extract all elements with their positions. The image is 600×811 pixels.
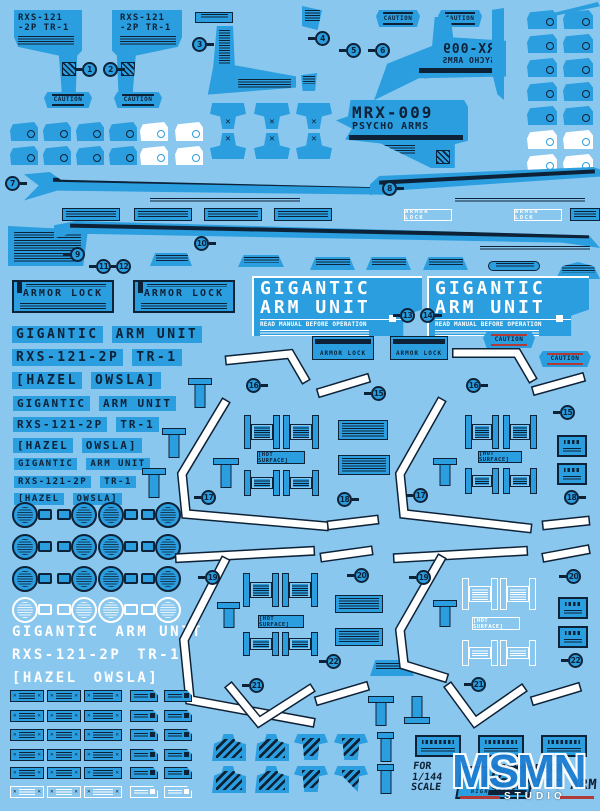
x-bar-decal [84,710,122,722]
boot-decal-white [140,146,168,165]
boot-decal [563,58,593,77]
spec-plate [558,597,588,619]
cap-decal [254,133,290,159]
boot-decal [76,122,104,141]
h-beam-decal [244,470,280,496]
label-strip [570,208,600,221]
mrx-title: MRX-009 [352,105,433,121]
watermark-logo: MSMN [452,748,585,794]
notch-bar-decal [130,767,158,779]
marker-16b: 16 [466,378,481,393]
hazard-cap-decal [334,734,368,760]
scale-note: FOR 1/144 SCALE [410,762,443,794]
h-beam-decal [282,573,318,607]
marker-17: 17 [201,490,216,505]
trapezoid-decal [150,253,192,266]
h-beam-decal [283,415,319,449]
marker-9: 9 [70,247,85,262]
x-bar-decal [10,710,44,722]
hot-surface-label: [HOT SURFACE] [257,451,305,464]
boot-decal [10,146,38,165]
decal-sheet: RXS-121 -2P TR-1 RXS-121 -2P TR-1 CAUTIO… [0,0,600,811]
armor-lock-bar-white: ARMOR LOCK [514,209,562,221]
hot-surface-label: [HOT SURFACE] [478,451,522,463]
keyhole-decal-white [12,597,54,624]
notch-bar-decal [130,729,158,741]
marker-19: 19 [205,570,220,585]
text-row-pilot-medium: [HAZELOWSLA] [13,438,151,453]
hazard-boot-decal [255,734,289,761]
notch-bar-decal [130,749,158,761]
marker-13: 13 [400,308,415,323]
notch-bar-decal [164,729,192,741]
cap-decal [254,103,290,129]
keyhole-decal [55,534,97,561]
panel-warning: READ MANUAL BEFORE OPERATION [260,321,416,329]
trapezoid-decal [238,255,284,267]
marker-20: 20 [354,568,369,583]
hazard-cap-decal [294,734,328,760]
armor-lock-bar-white: ARMOR LOCK [404,209,452,221]
boot-decal [10,122,38,141]
marker-5: 5 [346,43,361,58]
caution-decal: CAUTION [376,10,420,27]
blade-decal-8 [370,167,600,197]
marker-4: 4 [315,31,330,46]
t-bolt-decal [433,600,457,627]
text-row-unit-large: GIGANTICARM UNIT [12,326,211,343]
t-bolt-decal [217,602,240,628]
armor-lock-decal: ARMOR LOCK [12,280,114,313]
fin-decal [492,8,504,100]
x-bar-decal-white [10,786,44,798]
boot-decal [527,34,557,53]
hazard-cap-decal [334,766,368,792]
h-beam-decal-white [500,578,536,610]
cap-decal [210,103,246,129]
boot-decal [527,106,557,125]
boot-decal-white [175,122,203,141]
trapezoid-decal [423,257,468,270]
mrx-subtitle: PSYCHO ARMS [352,121,433,132]
notch-bar-decal [130,690,158,702]
spec-plate [558,626,588,648]
keyhole-decal [98,534,140,561]
wing-code-line2: -2P TR-1 [18,23,69,33]
notch-bar-decal [164,710,192,722]
marker-15b: 15 [560,405,575,420]
x-bar-decal [10,690,44,702]
notch-bar-decal-white [130,786,158,798]
notch-bar-decal [130,710,158,722]
marker-19b: 19 [416,570,431,585]
boot-decal-white [175,146,203,165]
wing-code-line1: RXS-121 [120,13,171,23]
h-beam-decal-white [462,640,498,666]
h-beam-decal [465,415,499,449]
x-bar-decal [84,767,122,779]
h-beam-decal [503,415,537,449]
h-beam-decal [243,573,279,607]
boot-decal [109,122,137,141]
small-angular-decal [301,73,317,91]
keyhole-decal [12,566,54,593]
t-bolt-decal [377,764,394,794]
spec-plate [557,435,587,457]
text-row-code-medium: RXS-121-2PTR-1 [13,417,168,432]
h-beam-decal-white [500,640,536,666]
marker-2: 2 [103,62,118,77]
gigantic-panel: GIGANTIC ARM UNIT READ MANUAL BEFORE OPE… [252,276,422,336]
keyhole-decal-white [55,597,97,624]
text-row-pilot-white: [HAZELOWSLA] [12,670,175,686]
marker-8: 8 [382,181,397,196]
t-bolt-decal [213,458,239,488]
panel-warning: READ MANUAL BEFORE OPERATION [435,321,583,329]
h-beam-decal [282,632,318,656]
boot-decal-white [527,130,557,149]
caution-decal: CAUTION [114,92,162,108]
h-beam-decal [465,468,499,494]
keyhole-decal [98,566,140,593]
t-bolt-decal [377,732,394,762]
label-strip [62,208,120,221]
boot-decal [43,146,71,165]
caution-decal-red: CAUTION [483,332,535,348]
boot-decal-white [140,122,168,141]
watermark-sub: STUDIO [504,791,566,802]
hatch-square [436,150,450,164]
boot-decal [563,82,593,101]
x-bar-decal [10,767,44,779]
watermark-rule-right [560,796,594,799]
hazard-boot-decal [212,766,246,793]
marker-17b: 17 [413,488,428,503]
rounded-bar-decal [488,261,540,271]
x-bar-decal [84,690,122,702]
boot-decal [563,10,593,29]
text-row-unit-small: GIGANTICARM UNIT [14,458,159,470]
t-bolt-decal [433,458,457,486]
notch-bar-decal [164,749,192,761]
marker-22: 22 [326,654,341,669]
spec-bar [338,420,388,440]
white-v-decal [445,682,525,728]
trapezoid-decal [310,257,355,270]
spec-bar [338,455,390,475]
small-caution-strip [195,12,233,23]
white-v-decal [225,680,315,730]
decal-mrx: MRX-009 PSYCHO ARMS [336,100,468,168]
label-strip [274,208,332,221]
keyhole-decal-white [98,597,140,624]
x-bar-decal [10,749,44,761]
marker-18b: 18 [564,490,579,505]
marker-21b: 21 [471,677,486,692]
decal-mrx-mirrored: MRX-009 PSYCHO ARMS [374,17,506,102]
spec-bar [335,628,383,646]
x-bar-decal [47,767,81,779]
boot-decal [109,146,137,165]
marker-6: 6 [375,43,390,58]
hazard-cap-decal [294,766,328,792]
x-bar-decal [47,690,81,702]
marker-18: 18 [337,492,352,507]
white-dash-decal [318,684,368,704]
spec-plate [557,463,587,485]
gigantic-panel: GIGANTIC ARM UNIT READ MANUAL BEFORE OPE… [427,276,589,336]
x-bar-decal-white [84,786,122,798]
text-row-code-small: RXS-121-2PTR-1 [14,476,145,488]
boot-decal [76,146,104,165]
x-bar-decal [47,710,81,722]
boot-decal [563,106,593,125]
hazard-boot-decal [212,734,246,761]
x-bar-decal [84,749,122,761]
marker-14: 14 [420,308,435,323]
hatch-square [62,62,76,76]
h-beam-decal [244,415,280,449]
hazard-boot-decal [255,766,289,793]
h-beam-decal [503,468,537,494]
x-bar-decal-white [47,786,81,798]
marker-20b: 20 [566,569,581,584]
text-row-pilot-large: [HAZELOWSLA] [12,372,170,389]
notch-bar-decal [164,690,192,702]
x-bar-decal [47,729,81,741]
marker-22b: 22 [568,653,583,668]
spec-bar [335,595,383,613]
keyhole-decal [12,534,54,561]
boot-decal [527,58,557,77]
keyhole-decal [98,502,140,529]
x-bar-decal [84,729,122,741]
marker-12: 12 [116,259,131,274]
hot-surface-label: [HOT SURFACE] [258,615,304,628]
cap-decal [296,133,332,159]
boot-decal [43,122,71,141]
wing-code-line1: RXS-121 [18,13,69,23]
t-bolt-decal [368,696,394,726]
boot-decal [527,82,557,101]
caution-decal: CAUTION [44,92,92,108]
cap-decal [296,103,332,129]
small-angular-decal [302,6,322,30]
boot-decal [527,10,557,29]
label-strip [204,208,262,221]
decal-panel-column [206,26,296,96]
x-bar-decal [10,729,44,741]
watermark-rule-left [460,796,500,799]
label-strip [134,208,192,221]
marker-3: 3 [192,37,207,52]
cap-decal [210,133,246,159]
keyhole-decal [55,502,97,529]
armor-lock-decal: ARMOR LOCK [133,280,235,313]
keyhole-decal [55,566,97,593]
marker-1: 1 [82,62,97,77]
trapezoid-decal [366,257,411,270]
h-beam-decal [283,470,319,496]
marker-21: 21 [249,678,264,693]
boot-decal [563,34,593,53]
t-bolt-decal-flipped [404,696,430,724]
notch-bar-decal [164,767,192,779]
marker-15: 15 [371,386,386,401]
wing-code-line2: -2P TR-1 [120,23,171,33]
hot-surface-label-white: [HOT SURFACE] [472,617,520,630]
keyhole-decal [12,502,54,529]
marker-7: 7 [5,176,20,191]
marker-16: 16 [246,378,261,393]
x-bar-decal [47,749,81,761]
h-beam-decal [243,632,279,656]
boot-decal-white [563,130,593,149]
marker-10: 10 [194,236,209,251]
white-dash-decal [534,686,580,704]
h-beam-decal-white [462,578,498,610]
notch-bar-decal-white [164,786,192,798]
